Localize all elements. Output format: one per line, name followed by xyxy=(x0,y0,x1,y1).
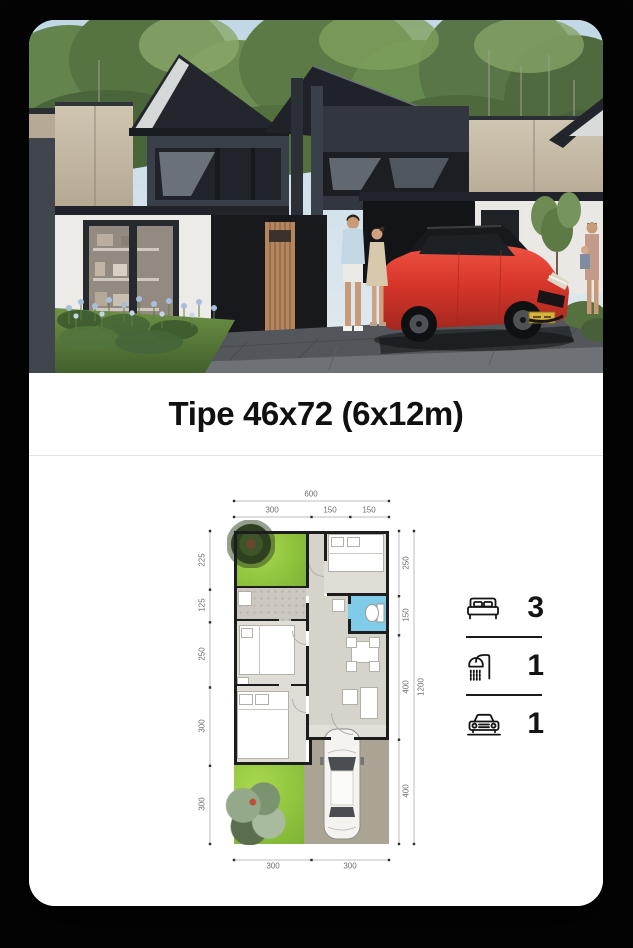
bed-3-pillow xyxy=(239,694,253,705)
wall-bath-bottom xyxy=(348,631,389,634)
dim-bottom-seg-2: 300 xyxy=(343,862,356,871)
bed-2-blanket-line xyxy=(259,625,260,675)
stat-bathrooms: 1 xyxy=(466,638,544,694)
dim-right-seg-4: 400 xyxy=(402,784,411,797)
bed-1-blanket-line xyxy=(328,553,384,554)
bed-3-pillow xyxy=(255,694,269,705)
wall-bath-left xyxy=(348,596,351,604)
dim-left-seg-4: 300 xyxy=(198,719,207,732)
wall-service-bottom xyxy=(237,619,279,621)
dim-right-seg-1: 250 xyxy=(402,556,411,569)
plan-section: 600 300 150 150 225 125 250 300 300 250 … xyxy=(29,456,603,906)
bed-1-pillow xyxy=(347,537,360,547)
wall-front-connector xyxy=(309,737,312,765)
wall-spine xyxy=(306,646,309,696)
dim-left-seg-3: 250 xyxy=(198,647,207,660)
wall-front-right xyxy=(309,737,331,740)
hero-photo xyxy=(29,20,603,373)
wall-right xyxy=(386,531,389,740)
hall-sink xyxy=(332,599,345,612)
dim-right-seg-3: 400 xyxy=(402,680,411,693)
stat-garage: 1 xyxy=(466,696,544,752)
dim-left-seg-2: 125 xyxy=(198,598,207,611)
sofa xyxy=(360,687,378,719)
bathroom-count: 1 xyxy=(527,649,544,683)
bed-2-pillow xyxy=(241,628,253,638)
page-title: Tipe 46x72 (6x12m) xyxy=(169,395,464,433)
car-top-view xyxy=(320,727,364,841)
dining-chair xyxy=(346,661,357,672)
dining-chair xyxy=(369,637,380,648)
floor-plan: 600 300 150 150 225 125 250 300 300 250 … xyxy=(195,486,450,881)
wall-spine xyxy=(306,603,309,631)
dim-top-seg-3: 150 xyxy=(362,506,375,515)
property-card[interactable]: Tipe 46x72 (6x12m) 600 300 150 150 xyxy=(29,20,603,906)
dim-bottom-seg-1: 300 xyxy=(266,862,279,871)
dim-top-seg-2: 150 xyxy=(323,506,336,515)
shrub-plan xyxy=(224,779,288,845)
wall-service-bottom xyxy=(291,619,306,621)
wall-spine xyxy=(306,531,309,588)
wall-garden-bottom xyxy=(237,586,306,588)
wall-front-right xyxy=(354,737,386,740)
bed-3-blanket-line xyxy=(237,709,289,710)
wall-bedroom1-bottom xyxy=(327,593,386,596)
shower-icon xyxy=(466,651,502,682)
dim-right-total: 1200 xyxy=(417,678,426,696)
laundry-sink xyxy=(238,591,252,606)
house-drawing xyxy=(234,531,389,844)
wall-front-left xyxy=(234,762,312,765)
coffee-table xyxy=(342,689,358,705)
toilet xyxy=(363,599,387,627)
bed-1-pillow xyxy=(331,537,344,547)
dining-chair xyxy=(346,637,357,648)
dim-left-seg-1: 225 xyxy=(198,553,207,566)
wall-top xyxy=(234,531,389,534)
dim-left-seg-5: 300 xyxy=(198,797,207,810)
dim-top-total: 600 xyxy=(304,490,317,499)
wall-bedroom1-left xyxy=(324,534,327,561)
title-wrap: Tipe 46x72 (6x12m) xyxy=(29,373,603,455)
wall-left xyxy=(234,531,237,765)
dining-chair xyxy=(369,661,380,672)
bedroom-count: 3 xyxy=(527,591,544,625)
wall-bedroom2-bottom xyxy=(291,684,306,686)
bed-icon xyxy=(466,595,502,622)
car-icon xyxy=(466,711,502,737)
stat-bedrooms: 3 xyxy=(466,580,544,636)
wall-bedroom2-bottom xyxy=(237,684,279,686)
spec-stats: 3 1 xyxy=(466,580,544,752)
garage-count: 1 xyxy=(527,707,544,741)
dim-top-seg-1: 300 xyxy=(265,506,278,515)
left-boundary-wall xyxy=(29,108,55,373)
dim-right-seg-2: 150 xyxy=(402,608,411,621)
